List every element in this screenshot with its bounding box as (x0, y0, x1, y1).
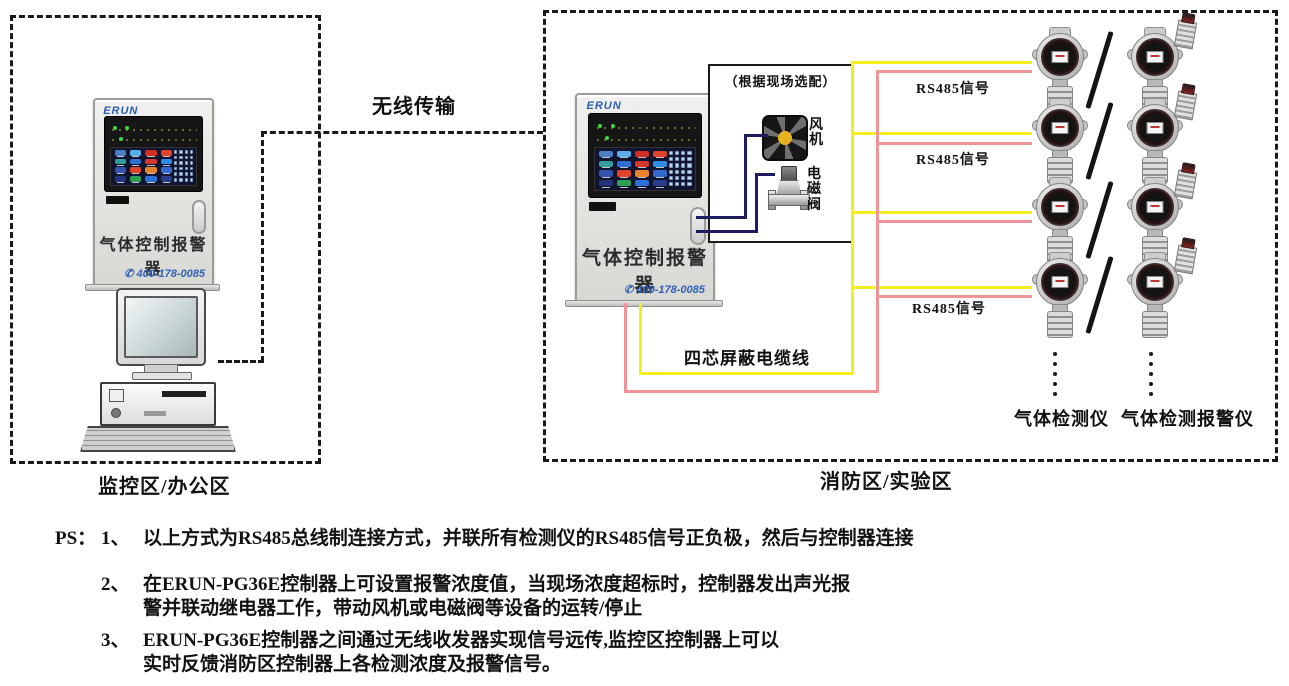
controller-monitor-zone: ERUN 气体控制报警器 ✆ 400-178-0085 (93, 98, 214, 288)
phone-icon: ✆ (124, 268, 133, 280)
keypad (669, 151, 692, 186)
controller-screen-bezel (588, 113, 702, 198)
door-handle (192, 200, 207, 234)
fan-icon (762, 115, 808, 161)
note-2: 2、 在ERUN-PG36E控制器上可设置报警浓度值，当现场浓度超标时，控制器发… (55, 573, 1015, 621)
service-phone: ✆ 400-178-0085 (624, 283, 705, 296)
keyboard (80, 426, 236, 452)
fan-label: 风机 (808, 118, 824, 149)
phone-icon: ✆ (624, 284, 633, 296)
note-3: 3、 ERUN-PG36E控制器之间通过无线收发器实现信号远传,监控区控制器上可… (55, 629, 1015, 677)
monitor-zone-label: 监控区/办公区 (98, 470, 231, 499)
rs485-label-3: RS485信号 (912, 298, 986, 318)
controller-display (594, 147, 695, 191)
controller-fire-zone: ERUN 气体控制报警器 ✆ 400-178-0085 (575, 93, 715, 305)
fire-zone-label: 消防区/实验区 (820, 465, 953, 494)
model-badge (106, 196, 129, 204)
detector-alarm-label: 气体检测报警仪 (1121, 405, 1254, 431)
valve-label: 电磁阀 (806, 167, 822, 213)
rs485-label-2: RS485信号 (916, 149, 990, 169)
footnotes: PS： 1、 以上方式为RS485总线制连接方式，并联所有检测仪的RS485信号… (55, 527, 1015, 677)
wireless-label: 无线传输 (372, 90, 456, 119)
app-icon-grid (115, 150, 173, 181)
app-icon-grid (599, 151, 666, 186)
brand-logo: ERUN (587, 100, 622, 112)
computer-tower (100, 382, 216, 426)
notes-prefix: PS： (55, 527, 101, 551)
controller-screen-bezel (104, 116, 202, 192)
model-badge (589, 202, 616, 211)
cable-label: 四芯屏蔽电缆线 (684, 344, 810, 369)
crt-monitor (116, 288, 206, 366)
option-box-title: （根据现场选配） (710, 71, 851, 90)
keypad (174, 150, 193, 181)
mount-plate (565, 300, 723, 307)
rs485-label-1: RS485信号 (916, 78, 990, 98)
note-1: PS： 1、 以上方式为RS485总线制连接方式，并联所有检测仪的RS485信号… (55, 527, 1015, 551)
detector-label: 气体检测仪 (1014, 405, 1109, 431)
system-diagram: 无线传输 ERUN 气体控制报警器 ✆ 400-178-0085 (0, 0, 1289, 686)
controller-display (110, 147, 197, 186)
brand-logo: ERUN (103, 105, 138, 117)
monitoring-computer (80, 288, 232, 448)
service-phone: ✆ 400-178-0085 (124, 267, 205, 280)
door-handle (690, 207, 706, 244)
